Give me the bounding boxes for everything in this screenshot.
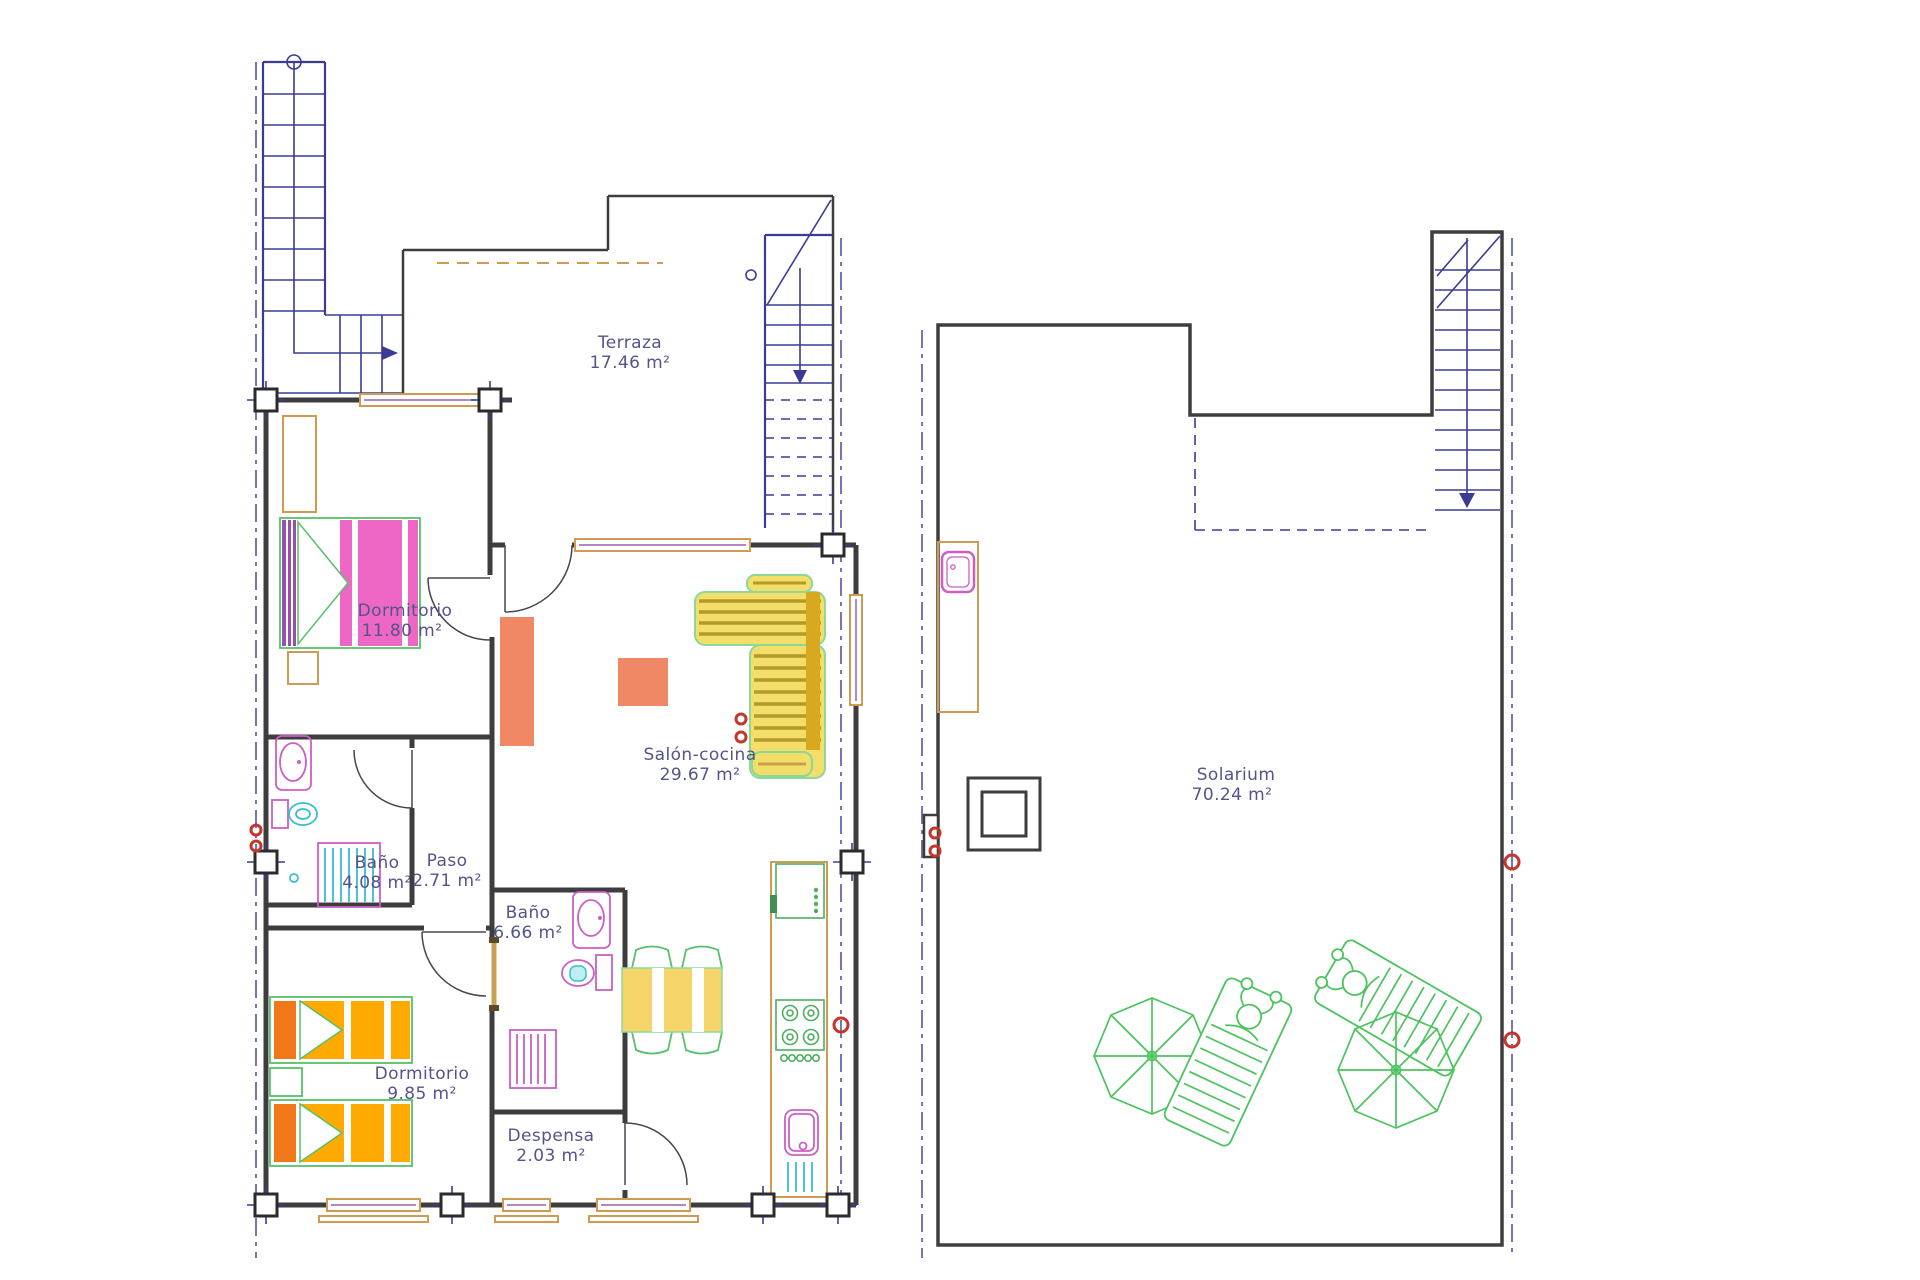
- umbrella-2: [1338, 1012, 1454, 1128]
- door-bano-1: [354, 750, 412, 808]
- column: [247, 1186, 285, 1224]
- stairs-landing-marker: [746, 270, 756, 280]
- room-label-bano2-area: 6.66 m²: [493, 923, 562, 943]
- stove: [776, 1000, 824, 1061]
- dormitorio-1-furniture: [280, 416, 420, 684]
- room-label-paso-area: 2.71 m²: [412, 871, 481, 891]
- salon-furniture: [500, 575, 825, 1054]
- room-label-solarium-area: 70.24 m²: [1192, 785, 1273, 805]
- stairs-arrow-down: [793, 370, 807, 384]
- door-dormitorio-2: [422, 932, 486, 996]
- window: [589, 1199, 698, 1222]
- stairs-top-left: [263, 55, 403, 400]
- bathroom-sink: [276, 736, 311, 790]
- door-salon: [505, 545, 572, 612]
- room-label-solarium-name: Solarium: [1197, 765, 1276, 785]
- window: [495, 1199, 558, 1222]
- twin-bed-2: [270, 1100, 412, 1166]
- right-plan: Solarium 70.24 m²: [922, 232, 1519, 1258]
- window: [319, 1199, 428, 1222]
- kitchen-sink: [785, 1110, 818, 1192]
- room-label-dormitorio1-name: Dormitorio: [358, 601, 453, 621]
- nightstand: [288, 652, 318, 684]
- washing-area: [510, 1030, 556, 1088]
- sideboard: [500, 617, 534, 746]
- column: [247, 381, 285, 419]
- column: [744, 1186, 782, 1224]
- counter-sink: [942, 552, 974, 592]
- overhang-dashed-lines: [1195, 418, 1432, 530]
- kitchen-counter: [770, 862, 827, 1197]
- stairs-arrow-down: [1459, 493, 1475, 508]
- column: [471, 381, 509, 419]
- terraza-stairs: [746, 200, 833, 528]
- column: [814, 526, 852, 564]
- nightstand: [270, 1068, 302, 1096]
- drain-marker: [251, 825, 261, 835]
- window: [360, 394, 480, 406]
- left-plan: Terraza 17.46 m² Dormitorio 11.80 m² Sal…: [247, 55, 871, 1258]
- column: [833, 843, 871, 881]
- door-bano-2: [489, 937, 499, 1011]
- floorplan-page: Terraza 17.46 m² Dormitorio 11.80 m² Sal…: [0, 0, 1920, 1280]
- structural-columns: [247, 381, 871, 1224]
- room-label-paso-name: Paso: [427, 851, 468, 871]
- chimney: [968, 778, 1040, 850]
- room-label-bano2-name: Baño: [506, 903, 551, 923]
- bathroom-sink: [573, 892, 610, 948]
- room-label-dormitorio2-name: Dormitorio: [375, 1064, 470, 1084]
- window: [575, 539, 750, 551]
- room-label-dormitorio1-area: 11.80 m²: [362, 621, 443, 641]
- dining-table: [622, 947, 722, 1054]
- floor-drain: [290, 874, 298, 882]
- door-despensa: [625, 1123, 687, 1185]
- fridge: [770, 864, 824, 918]
- window: [850, 595, 862, 705]
- wardrobe: [283, 416, 316, 512]
- room-label-despensa-area: 2.03 m²: [516, 1146, 585, 1166]
- room-label-bano1-area: 4.08 m²: [342, 873, 411, 893]
- twin-bed-1: [270, 997, 412, 1063]
- column: [819, 1186, 857, 1224]
- room-label-terraza-name: Terraza: [597, 333, 662, 353]
- stairs-arrow-right: [382, 346, 398, 360]
- room-label-salon-area: 29.67 m²: [660, 765, 741, 785]
- room-labels-right: Solarium 70.24 m²: [1192, 765, 1276, 805]
- outdoor-counter: [938, 542, 978, 712]
- room-label-bano1-name: Baño: [355, 853, 400, 873]
- room-label-dormitorio2-area: 9.85 m²: [387, 1084, 456, 1104]
- room-label-despensa-name: Despensa: [508, 1126, 595, 1146]
- coffee-table: [618, 658, 668, 706]
- drain-marker: [736, 732, 746, 742]
- sun-lounger-1: [1162, 970, 1296, 1148]
- room-label-salon-name: Salón-cocina: [643, 745, 756, 765]
- drain-marker: [736, 714, 746, 724]
- toilet: [272, 800, 317, 828]
- floorplan-canvas: Terraza 17.46 m² Dormitorio 11.80 m² Sal…: [0, 0, 1920, 1280]
- room-label-terraza-area: 17.46 m²: [590, 353, 671, 373]
- solarium-stairs: [1435, 236, 1500, 510]
- column: [433, 1186, 471, 1224]
- toilet: [562, 955, 612, 990]
